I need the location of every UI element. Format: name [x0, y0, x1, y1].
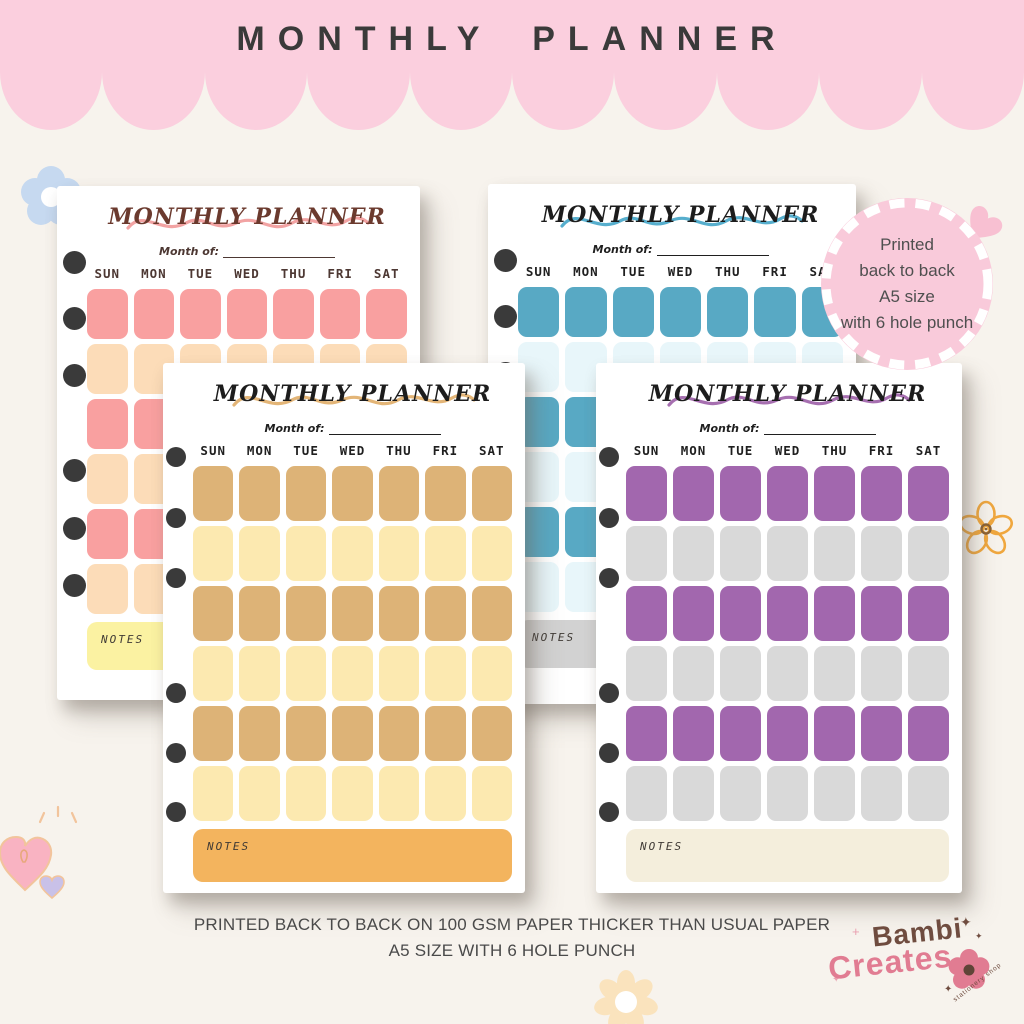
header-scallop [205, 72, 307, 130]
day-header: FRI [425, 443, 465, 458]
page-content: MONTHLY PLANNERMonth of:SUNMONTUEWEDTHUF… [626, 371, 949, 882]
header-title: MONTHLY PLANNER [0, 20, 1024, 59]
calendar-cell [660, 287, 701, 337]
hole-punch [599, 743, 619, 763]
header-scallop [819, 72, 921, 130]
day-header: THU [379, 443, 419, 458]
day-headers-row: SUNMONTUEWEDTHUFRISAT [87, 266, 407, 281]
month-underline [657, 255, 769, 256]
month-underline [764, 434, 876, 435]
calendar-cell [720, 766, 761, 821]
calendar-cell [908, 706, 949, 761]
calendar-cell [239, 646, 279, 701]
day-headers-row: SUNMONTUEWEDTHUFRISAT [626, 443, 949, 458]
calendar-cell [673, 646, 714, 701]
calendar-cell [286, 586, 326, 641]
calendar-cell [720, 526, 761, 581]
calendar-cell [227, 289, 268, 339]
day-headers-row: SUNMONTUEWEDTHUFRISAT [193, 443, 512, 458]
day-header: SAT [908, 443, 949, 458]
hole-punch [599, 508, 619, 528]
calendar-cell [720, 466, 761, 521]
calendar-cell [814, 586, 855, 641]
calendar-cell [332, 646, 372, 701]
day-header: MON [134, 266, 175, 281]
calendar-cell [239, 466, 279, 521]
planner-title: MONTHLY PLANNER [518, 196, 843, 228]
calendar-cell [320, 289, 361, 339]
sparkle-icon: ✦ [975, 932, 983, 941]
calendar-cell [720, 646, 761, 701]
hole-punch [599, 568, 619, 588]
calendar-cell [720, 706, 761, 761]
day-headers-row: SUNMONTUEWEDTHUFRISAT [518, 264, 843, 279]
calendar-cell [814, 706, 855, 761]
calendar-cell [379, 706, 419, 761]
outline-flower-decoration [958, 500, 1014, 558]
calendar-cell [379, 766, 419, 821]
planner-title: MONTHLY PLANNER [193, 375, 512, 407]
calendar-cell [472, 586, 512, 641]
header-scallop [512, 72, 614, 130]
month-of-label: Month of: [700, 422, 760, 435]
hole-punch [63, 364, 86, 387]
hole-punch [599, 683, 619, 703]
hole-punch [63, 517, 86, 540]
calendar-cell [87, 399, 128, 449]
hole-punch [494, 305, 517, 328]
planner-page-purple: MONTHLY PLANNERMonth of:SUNMONTUEWEDTHUF… [596, 363, 962, 893]
header-scallop [614, 72, 716, 130]
header-scallop [410, 72, 512, 130]
day-header: TUE [613, 264, 654, 279]
calendar-cell [720, 586, 761, 641]
day-header: TUE [720, 443, 761, 458]
calendar-cell [814, 466, 855, 521]
calendar-cell [908, 766, 949, 821]
day-header: WED [660, 264, 701, 279]
calendar-cell [286, 646, 326, 701]
calendar-cell [814, 526, 855, 581]
notes-label: NOTES [640, 840, 683, 853]
calendar-cell [626, 526, 667, 581]
calendar-cell [425, 466, 465, 521]
calendar-cell [626, 766, 667, 821]
day-header: THU [707, 264, 748, 279]
calendar-cell [332, 526, 372, 581]
calendar-cell [814, 646, 855, 701]
planner-title: MONTHLY PLANNER [87, 198, 407, 230]
calendar-cell [767, 586, 808, 641]
calendar-cell [565, 287, 606, 337]
month-of-row: Month of: [87, 240, 407, 258]
hole-punch [166, 508, 186, 528]
badge-line: A5 size [819, 284, 995, 310]
calendar-cell [767, 766, 808, 821]
calendar-cell [861, 526, 902, 581]
calendar-cell [332, 706, 372, 761]
day-header: WED [227, 266, 268, 281]
calendar-cell [767, 706, 808, 761]
header-scallop [922, 72, 1024, 130]
calendar-cell [239, 586, 279, 641]
hole-punch [166, 683, 186, 703]
header-scallop [717, 72, 819, 130]
planner-title-wrap: MONTHLY PLANNER [87, 198, 407, 238]
calendar-cell [193, 646, 233, 701]
header-scallop-row [0, 72, 1024, 132]
calendar-cell [379, 466, 419, 521]
day-header: SUN [87, 266, 128, 281]
day-header: SUN [193, 443, 233, 458]
calendar-cell [613, 287, 654, 337]
calendar-cell [87, 454, 128, 504]
calendar-cell [286, 526, 326, 581]
calendar-cell [908, 526, 949, 581]
calendar-cell [861, 766, 902, 821]
calendar-cell [626, 646, 667, 701]
planner-title-wrap: MONTHLY PLANNER [518, 196, 843, 236]
calendar-cell [193, 586, 233, 641]
calendar-cell [332, 586, 372, 641]
day-header: SUN [626, 443, 667, 458]
planner-title-wrap: MONTHLY PLANNER [626, 375, 949, 415]
month-of-row: Month of: [193, 417, 512, 435]
day-header: SAT [472, 443, 512, 458]
notes-label: NOTES [101, 633, 144, 646]
month-of-row: Month of: [518, 238, 843, 256]
calendar-cell [626, 706, 667, 761]
calendar-cell [332, 766, 372, 821]
calendar-cell [286, 706, 326, 761]
hole-punch [63, 574, 86, 597]
notes-section: NOTES [193, 829, 512, 882]
calendar-cell [87, 564, 128, 614]
hole-punch [599, 802, 619, 822]
calendar-cell [767, 466, 808, 521]
logo-word-creates: Creates [826, 938, 954, 988]
month-of-label: Month of: [159, 245, 219, 258]
calendar-cell [193, 466, 233, 521]
calendar-cell [673, 706, 714, 761]
calendar-cell [754, 287, 795, 337]
hole-punch [63, 307, 86, 330]
month-of-label: Month of: [593, 243, 653, 256]
header-scallop [102, 72, 204, 130]
calendar-cell [472, 526, 512, 581]
calendar-cell [814, 766, 855, 821]
calendar-cell [425, 646, 465, 701]
calendar-grid [193, 466, 512, 821]
calendar-cell [425, 586, 465, 641]
calendar-cell [472, 466, 512, 521]
calendar-cell [472, 706, 512, 761]
calendar-cell [286, 766, 326, 821]
calendar-cell [180, 289, 221, 339]
hole-punch [166, 568, 186, 588]
notes-section: NOTES [626, 829, 949, 882]
calendar-cell [861, 706, 902, 761]
header-scallop [307, 72, 409, 130]
hearts-decoration [0, 800, 100, 910]
calendar-cell [908, 586, 949, 641]
day-header: SAT [366, 266, 407, 281]
product-image-canvas: MONTHLY PLANNER MONTHLY PLANNERMonth of:… [0, 0, 1024, 1024]
calendar-cell [332, 466, 372, 521]
calendar-cell [379, 646, 419, 701]
calendar-cell [193, 766, 233, 821]
calendar-cell [861, 466, 902, 521]
calendar-cell [626, 466, 667, 521]
page-content: MONTHLY PLANNERMonth of:SUNMONTUEWEDTHUF… [193, 371, 512, 882]
calendar-cell [379, 586, 419, 641]
day-header: FRI [861, 443, 902, 458]
calendar-grid [626, 466, 949, 821]
calendar-cell [767, 646, 808, 701]
badge-line: Printed [819, 232, 995, 258]
calendar-cell [861, 586, 902, 641]
day-header: MON [239, 443, 279, 458]
month-of-label: Month of: [265, 422, 325, 435]
calendar-cell [425, 706, 465, 761]
calendar-cell [239, 766, 279, 821]
calendar-cell [861, 646, 902, 701]
calendar-cell [673, 766, 714, 821]
calendar-cell [87, 344, 128, 394]
planner-title-wrap: MONTHLY PLANNER [193, 375, 512, 415]
calendar-cell [673, 586, 714, 641]
notes-label: NOTES [207, 840, 250, 853]
day-header: THU [814, 443, 855, 458]
badge-text: Printed back to back A5 size with 6 hole… [819, 196, 995, 372]
hole-punch [494, 249, 517, 272]
month-underline [329, 434, 441, 435]
hole-punch [599, 447, 619, 467]
day-header: FRI [754, 264, 795, 279]
calendar-cell [518, 287, 559, 337]
day-header: WED [332, 443, 372, 458]
calendar-cell [239, 706, 279, 761]
calendar-cell [87, 509, 128, 559]
sparkle-icon: + [852, 925, 860, 938]
calendar-cell [379, 526, 419, 581]
brand-logo: + ✦ ✦ ✦ ✦ Bambi Creates stationery shop [826, 913, 1024, 1023]
day-header: WED [767, 443, 808, 458]
calendar-cell [673, 526, 714, 581]
calendar-cell [193, 706, 233, 761]
badge-line: back to back [819, 258, 995, 284]
calendar-cell [425, 526, 465, 581]
calendar-cell [626, 586, 667, 641]
calendar-cell [286, 466, 326, 521]
calendar-cell [425, 766, 465, 821]
calendar-cell [273, 289, 314, 339]
badge-line: with 6 hole punch [819, 310, 995, 336]
day-header: MON [673, 443, 714, 458]
info-badge: Printed back to back A5 size with 6 hole… [819, 196, 995, 372]
calendar-cell [472, 646, 512, 701]
day-header: TUE [286, 443, 326, 458]
header-scallop [0, 72, 102, 130]
calendar-cell [134, 289, 175, 339]
day-header: MON [565, 264, 606, 279]
month-of-row: Month of: [626, 417, 949, 435]
hole-punch [63, 459, 86, 482]
notes-label: NOTES [532, 631, 575, 644]
planner-title: MONTHLY PLANNER [626, 375, 949, 407]
day-header: FRI [320, 266, 361, 281]
calendar-cell [908, 646, 949, 701]
calendar-cell [472, 766, 512, 821]
hole-punch [166, 743, 186, 763]
calendar-cell [366, 289, 407, 339]
calendar-cell [908, 466, 949, 521]
calendar-cell [767, 526, 808, 581]
day-header: SUN [518, 264, 559, 279]
calendar-cell [193, 526, 233, 581]
calendar-cell [239, 526, 279, 581]
day-header: THU [273, 266, 314, 281]
month-underline [223, 257, 335, 258]
calendar-cell [707, 287, 748, 337]
hole-punch [63, 251, 86, 274]
planner-page-tan: MONTHLY PLANNERMonth of:SUNMONTUEWEDTHUF… [163, 363, 525, 893]
hole-punch [166, 447, 186, 467]
day-header: TUE [180, 266, 221, 281]
hole-punch [166, 802, 186, 822]
calendar-cell [673, 466, 714, 521]
cream-flower-decoration [592, 968, 660, 1024]
calendar-cell [87, 289, 128, 339]
